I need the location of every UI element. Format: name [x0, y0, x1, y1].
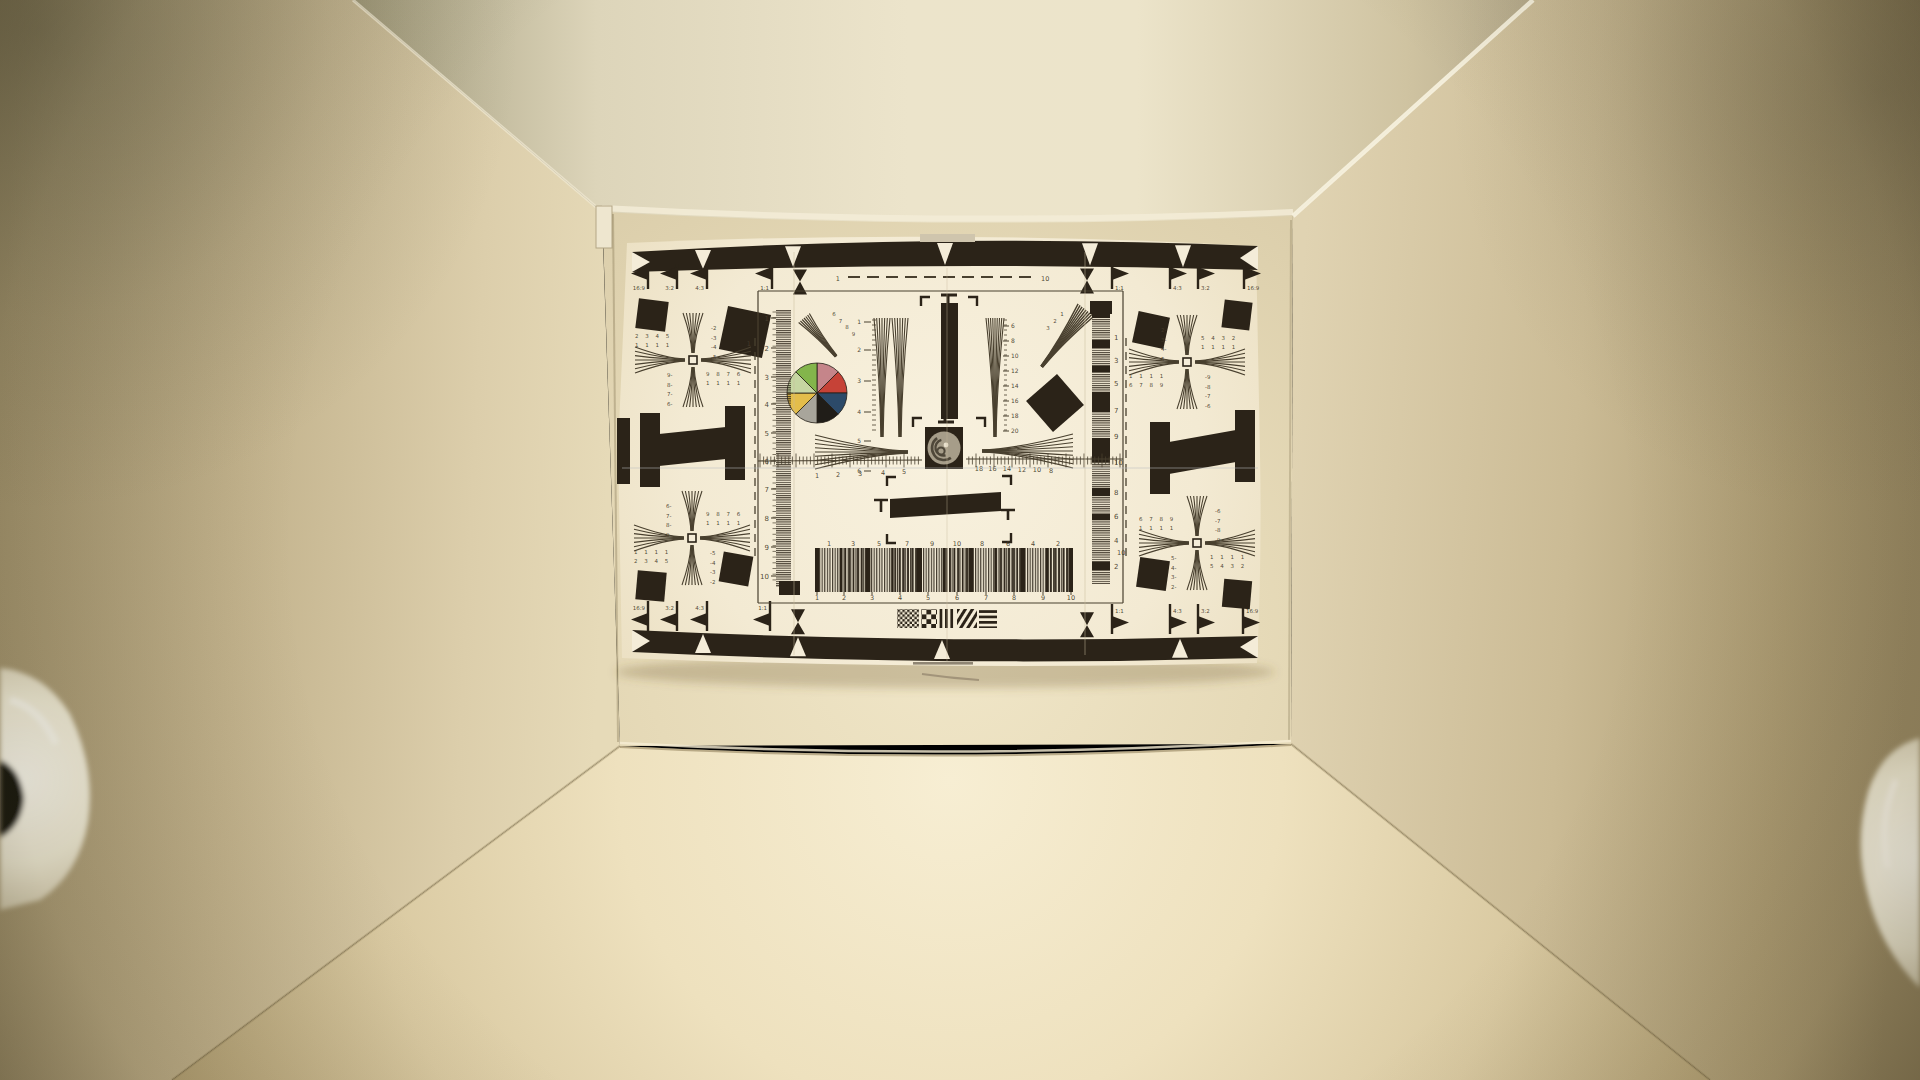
lightbox-scene: 16:93:24:31:11:14:33:216:916:93:24:31:11… [0, 0, 1920, 1080]
scene-canvas: 16:93:24:31:11:14:33:216:916:93:24:31:11… [0, 0, 1920, 1080]
vignette-overlay [0, 0, 1920, 1080]
